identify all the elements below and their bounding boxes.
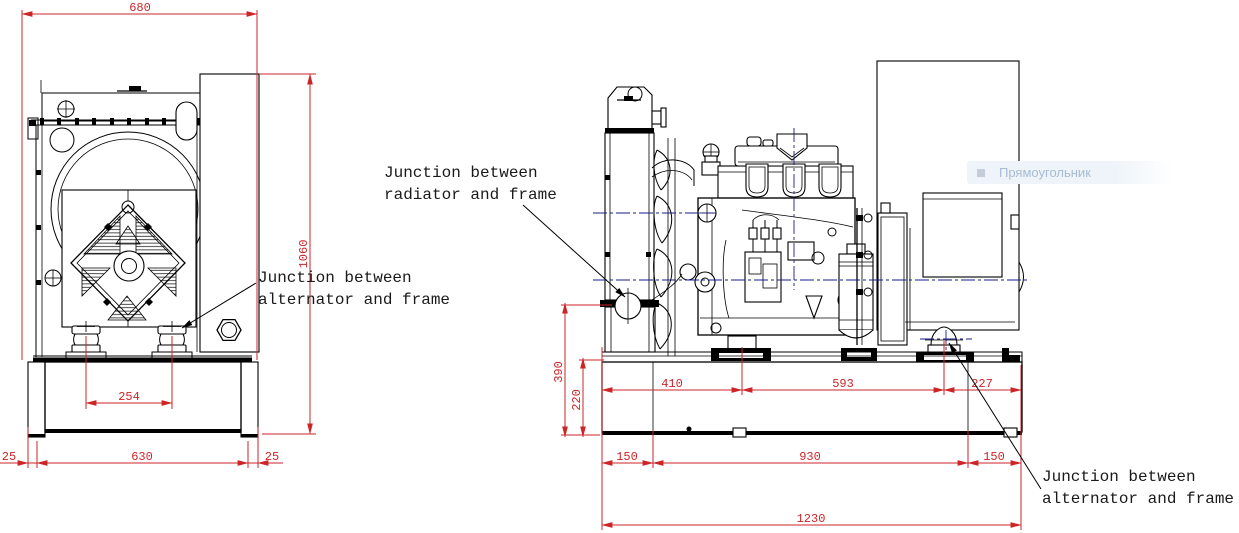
terminal-box-front [200, 74, 259, 352]
annotation-radiator-frame-line2: radiator and frame [384, 186, 557, 204]
annotation-alternator-frame-front-line1: Junction between [258, 269, 412, 287]
side-view: 390 220 410 593 227 150 930 15 [384, 61, 1234, 530]
alternator-side [877, 61, 1024, 362]
dim-mount-positions: 410 593 227 [602, 341, 1021, 530]
shaft-hub [114, 251, 144, 281]
svg-text:630: 630 [131, 450, 153, 464]
base-frame-front [28, 356, 258, 437]
svg-text:593: 593 [832, 377, 854, 391]
rectangle-tool-icon [977, 169, 985, 177]
annotation-alternator-frame-side-line2: alternator and frame [1042, 490, 1234, 508]
base-frame-side [602, 352, 1022, 437]
annotation-alternator-frame-side-line1: Junction between [1042, 468, 1196, 486]
bearing-bulge [1019, 262, 1024, 292]
svg-text:680: 680 [129, 1, 151, 15]
dim-overall-height: 1060 [259, 74, 316, 434]
svg-text:25: 25 [265, 450, 279, 464]
svg-text:1230: 1230 [797, 512, 826, 526]
svg-text:220: 220 [570, 389, 584, 411]
engine-side [652, 134, 877, 361]
svg-text:410: 410 [661, 377, 683, 391]
alternator-intake-grille [878, 213, 907, 345]
svg-text:150: 150 [983, 450, 1005, 464]
generator-set-drawing: 680 1060 254 25 630 25 [0, 0, 1239, 533]
rectangle-tooltip: Прямоугольник [967, 161, 1173, 184]
drawing-canvas: 680 1060 254 25 630 25 [0, 0, 1239, 533]
svg-text:1060: 1060 [297, 240, 311, 269]
radiator-side [605, 87, 666, 300]
drain-funnel [806, 296, 822, 318]
svg-text:930: 930 [799, 450, 821, 464]
rectangle-tooltip-label: Прямоугольник [999, 165, 1091, 180]
dim-overall-length: 1230 [602, 512, 1021, 526]
svg-text:390: 390 [552, 361, 566, 383]
terminal-box-side [923, 193, 1002, 277]
alternator-front [62, 190, 196, 327]
filter-dome [839, 330, 873, 338]
dim-frame-height: 220 [570, 358, 604, 437]
svg-text:150: 150 [616, 450, 638, 464]
svg-text:25: 25 [2, 450, 16, 464]
dim-radiator-junction-height: 390 [552, 303, 612, 437]
dim-foot-positions: 150 930 150 [602, 430, 1021, 468]
vent-mesh-icon [50, 128, 74, 152]
leader-alternator-junction [949, 343, 1041, 489]
lifting-slot [176, 102, 197, 140]
annotation-radiator-frame-line1: Junction between [384, 164, 538, 182]
front-view: 680 1060 254 25 630 25 [0, 1, 450, 468]
svg-text:254: 254 [118, 390, 140, 404]
annotation-alternator-frame-front-line2: alternator and frame [258, 291, 450, 309]
